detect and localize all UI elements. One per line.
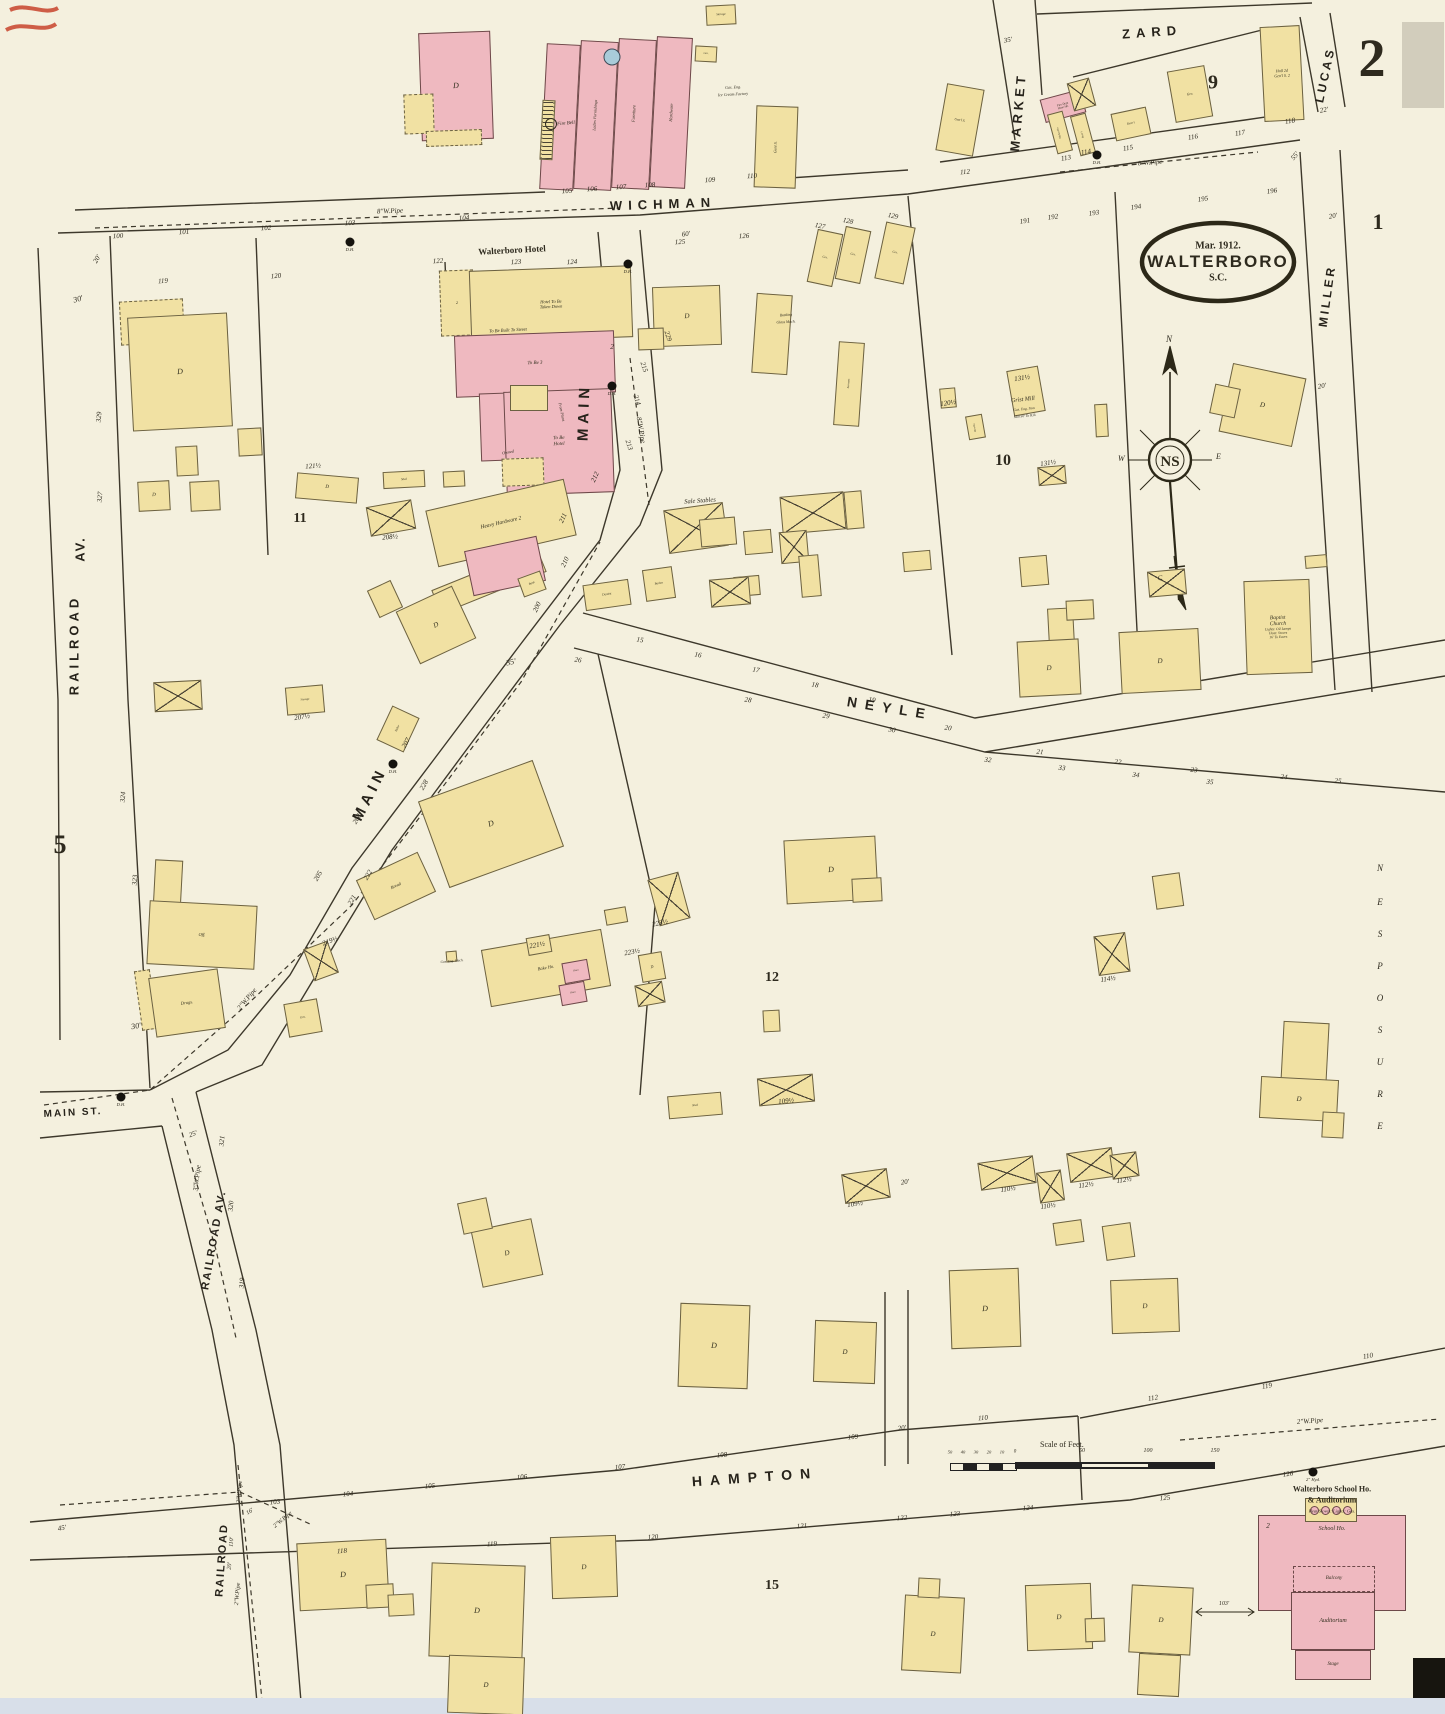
lot-number: 319 — [238, 1277, 247, 1288]
lot-number: 208½ — [382, 532, 398, 541]
building-label: D — [1026, 1584, 1092, 1650]
building-label: D — [1111, 1279, 1179, 1333]
map-annotation: 60' — [681, 229, 691, 238]
building-label: Balcony — [1294, 1567, 1374, 1591]
brick-building: Balcony — [1293, 1566, 1375, 1592]
building-label: D — [296, 473, 358, 502]
compass-west-label: W — [1118, 454, 1125, 463]
building-label: Hall 2dGen'l S. 2 — [1261, 26, 1304, 121]
map-annotation: Gas. Eng. — [725, 84, 741, 90]
lot-number: 126 — [739, 232, 750, 241]
map-annotation: 22' — [1319, 105, 1329, 114]
building-label: Gro. — [1168, 66, 1212, 121]
scan-smudge — [1402, 22, 1444, 108]
map-annotation: Heat-Stoves: Lights: Gas. — [1309, 1509, 1356, 1514]
frame-building: D — [1025, 1583, 1093, 1651]
building-label: Barber — [643, 567, 675, 601]
lot-number: 323 — [131, 874, 140, 885]
lot-number: 21 — [1036, 748, 1044, 757]
lot-number: 324 — [119, 791, 128, 802]
block-number: 1 — [1373, 209, 1384, 235]
lot-number: 24 — [1280, 773, 1288, 782]
map-annotation: & Auditorium — [1308, 1496, 1357, 1505]
frame-building — [443, 470, 466, 487]
lot-number: 107 — [616, 183, 627, 192]
frame-building — [1053, 1219, 1085, 1246]
fire-bell-icon — [545, 118, 557, 130]
block-number: 12 — [765, 970, 779, 986]
lot-number: 105 — [424, 1482, 435, 1491]
frame-building: BaptistChurchLights: Oil LampsHeat: Stov… — [1243, 579, 1312, 675]
street-label-av-: AV. — [73, 536, 88, 562]
scale-segment — [1082, 1462, 1148, 1469]
lot-number: 22 — [1114, 758, 1122, 767]
frame-building: D — [1128, 1584, 1193, 1655]
block-number: 2 — [1359, 27, 1386, 89]
lot-number: 110 — [978, 1414, 989, 1423]
hydrant-dot-icon — [346, 238, 355, 247]
map-annotation: Bottling — [780, 313, 792, 318]
street-label-railroad: RAILROAD — [67, 595, 82, 696]
building-label: Restr't — [1112, 108, 1151, 141]
scale-segment — [1148, 1462, 1215, 1469]
compass-east-label: E — [1216, 452, 1221, 461]
stable-cross-icon — [154, 681, 201, 711]
frame-building — [1094, 404, 1109, 438]
map-annotation: P — [1377, 961, 1383, 971]
lot-number: 109 — [705, 176, 716, 185]
lot-number: 125 — [675, 238, 686, 247]
brick-building: Stage — [1295, 1650, 1371, 1680]
frame-building — [1147, 568, 1187, 597]
building-label: Off. — [147, 901, 256, 968]
map-annotation: R — [1377, 1089, 1383, 1099]
frame-building: Storage — [285, 684, 325, 715]
map-annotation: S — [1378, 929, 1383, 939]
lot-number: 110 — [747, 172, 757, 181]
hydrant-dot-icon — [389, 760, 398, 769]
lot-number: 109½ — [778, 1096, 795, 1106]
lot-number: 117 — [1234, 128, 1245, 138]
lot-number: 195 — [1197, 194, 1209, 203]
frame-building — [917, 1577, 940, 1598]
frame-building — [1093, 932, 1130, 976]
lot-number: 327 — [96, 491, 105, 502]
building-label: Gro. — [284, 999, 321, 1036]
frame-building: Gro. — [695, 45, 718, 62]
lot-number: 20 — [944, 724, 952, 733]
lot-number: 196 — [1266, 186, 1278, 195]
scale-segment — [1015, 1462, 1082, 1469]
frame-building — [153, 680, 203, 712]
map-annotation: Walterboro School Ho. — [1293, 1485, 1371, 1494]
block-number: 15 — [765, 1578, 779, 1594]
frame-building — [699, 516, 737, 547]
building-label: D — [639, 952, 665, 981]
frame-building: Drugs. — [148, 968, 226, 1037]
scale-minor-label: 10 — [1000, 1450, 1005, 1455]
scale-major-label: 100 — [1144, 1448, 1153, 1454]
frame-building: D — [813, 1320, 877, 1384]
frame-building — [1102, 1222, 1136, 1261]
stable-cross-icon — [635, 982, 664, 1006]
map-annotation: 20' — [1317, 381, 1327, 390]
frame-building — [1037, 465, 1067, 486]
map-city-name: WALTERBORO — [1118, 252, 1318, 272]
frame-building — [1065, 599, 1094, 620]
lot-number: 30 — [888, 726, 896, 735]
building-label: Shed — [668, 1093, 722, 1118]
lot-number: 115 — [1122, 143, 1133, 153]
frame-building: D — [295, 472, 359, 503]
lot-number: 23 — [1190, 766, 1198, 775]
frame-building: D — [901, 1594, 965, 1673]
frame-building — [189, 480, 221, 512]
scale-minor-label: 50 — [948, 1450, 953, 1455]
building-label: D — [1018, 639, 1081, 696]
frame-building — [638, 328, 665, 351]
hydrant-dot-icon — [117, 1093, 126, 1102]
scale-bar-title: Scale of Feet. — [1040, 1440, 1084, 1449]
frame-building — [1137, 1653, 1181, 1697]
building-label: Storage — [707, 5, 736, 24]
scale-minor-label: 30 — [974, 1450, 979, 1455]
lot-number: 107 — [614, 1463, 625, 1472]
brick-building: Auditorium — [1291, 1592, 1375, 1650]
frame-building — [851, 877, 882, 903]
hydrant-dot-icon — [1309, 1468, 1318, 1477]
frame-building: Gro. — [283, 998, 322, 1037]
frame-building: Off. — [146, 900, 257, 970]
stable-cross-icon — [1038, 466, 1065, 485]
lot-number: 112 — [1147, 1393, 1158, 1403]
map-annotation: O — [1377, 993, 1384, 1003]
frame-building — [751, 293, 792, 375]
map-annotation: 20' — [900, 1177, 910, 1186]
frame-building — [1321, 1111, 1344, 1138]
map-annotation: S — [1378, 1025, 1383, 1035]
scale-major-label: 150 — [1211, 1448, 1220, 1454]
map-annotation: U — [1377, 1057, 1384, 1067]
frame-building — [1066, 1147, 1116, 1183]
lot-number: 33 — [1058, 764, 1066, 773]
hydrant-dot-icon — [624, 260, 633, 269]
lot-number: 108 — [716, 1451, 727, 1460]
frame-building — [1036, 1169, 1065, 1203]
frame-building: D — [678, 1303, 751, 1389]
building-label: Oven — [560, 982, 587, 1005]
building-label: D — [679, 1304, 750, 1388]
map-date: Mar. 1912. — [1118, 241, 1318, 252]
map-annotation: 35' — [1003, 35, 1013, 44]
lot-number: 123 — [949, 1510, 960, 1519]
lot-number: 29 — [822, 712, 830, 721]
lot-number: 329 — [95, 411, 104, 422]
lot-number: 193 — [1088, 208, 1100, 217]
frame-building — [1304, 554, 1327, 569]
building-label: Stage — [1296, 1651, 1370, 1679]
lot-number: 101 — [179, 228, 190, 237]
frame-building — [843, 490, 864, 529]
lot-number: 2 — [1266, 1522, 1270, 1530]
lot-number: 124 — [1022, 1504, 1033, 1513]
scan-edge-strip — [0, 1698, 1445, 1714]
lot-number: 103 — [345, 219, 356, 228]
map-annotation: E — [1377, 1121, 1383, 1131]
block-number: 10 — [995, 452, 1011, 470]
lot-number: 122 — [433, 257, 444, 266]
lot-number: 103 — [269, 1498, 280, 1507]
scale-minor-label: 20 — [987, 1450, 992, 1455]
lot-number: 119 — [158, 277, 169, 286]
lot-number: 32 — [984, 756, 992, 765]
lot-number: 121½ — [305, 461, 321, 470]
building-label: Dentist — [584, 580, 631, 610]
frame-building — [1019, 555, 1050, 587]
map-annotation: 20' — [1328, 211, 1338, 220]
lot-number: 112 — [960, 168, 971, 177]
frame-building: D — [127, 312, 233, 431]
frame-building — [1152, 872, 1184, 910]
street-label-main: MAIN — [574, 383, 593, 442]
lot-number: 321 — [218, 1135, 227, 1146]
building-label: D — [1119, 629, 1200, 693]
hydrant-label: D.H. — [346, 247, 355, 252]
frame-building: Barber — [642, 566, 676, 602]
map-annotation: 8"W.Pipe — [377, 207, 403, 216]
lot-number: 16 — [694, 651, 702, 660]
frame-building — [1280, 1021, 1329, 1085]
brick-building: Oven — [558, 981, 587, 1006]
stable-cross-icon — [1148, 569, 1186, 596]
building-label: D — [128, 314, 232, 431]
stable-cross-icon — [1037, 1171, 1064, 1203]
frame-building — [1085, 1618, 1106, 1643]
frame-building — [798, 554, 822, 598]
lot-number: 119 — [487, 1540, 498, 1549]
lot-number: 100 — [113, 232, 124, 241]
frame-building: D — [550, 1535, 618, 1599]
lot-number: 110 — [1362, 1351, 1373, 1361]
frame-building — [175, 445, 199, 476]
lot-number: 15 — [636, 636, 644, 645]
lot-number: 104 — [459, 214, 470, 223]
lot-number: 116 — [1187, 132, 1198, 142]
map-state: S.C. — [1118, 273, 1318, 284]
lot-number: 35 — [1206, 778, 1214, 787]
frame-building: Shed — [383, 470, 426, 489]
lot-number: 104 — [342, 1490, 353, 1499]
frame-building: D — [1110, 1278, 1180, 1334]
lot-number: 102 — [261, 224, 272, 233]
lot-number: 118 — [337, 1547, 348, 1556]
lot-number: 121 — [796, 1522, 807, 1531]
building-label: Drugs. — [149, 970, 224, 1037]
lot-number: 18 — [811, 681, 819, 690]
frame-building — [387, 1593, 414, 1616]
frame-building — [762, 1010, 780, 1033]
frame-building: D — [1017, 638, 1082, 697]
lot-number: 109 — [847, 1433, 858, 1442]
lot-number: 118 — [1284, 116, 1295, 126]
frame-building — [237, 427, 262, 456]
hydrant-label: D.H. — [1093, 160, 1102, 165]
building-label: Oven — [563, 960, 590, 983]
lot-number: 108 — [645, 181, 656, 190]
distance-arrow — [1196, 1608, 1254, 1616]
lot-number: C — [1157, 574, 1162, 582]
lot-number: 192 — [1047, 212, 1059, 221]
lot-number: 120 — [270, 272, 281, 281]
building-label: Gro. — [696, 46, 717, 61]
stable-cross-icon — [710, 577, 750, 606]
lot-number: 17 — [752, 666, 760, 675]
sanborn-map-sheet: NS Mar. 1912. WALTERBORO S.C. N W E Scal… — [0, 0, 1445, 1714]
lot-number: 119 — [1261, 1381, 1272, 1391]
lot-number: 320 — [227, 1200, 236, 1211]
stable-cross-icon — [781, 492, 846, 533]
frame-building: Gent S. — [754, 105, 799, 188]
frame-building: D — [1118, 628, 1201, 694]
frame-building — [779, 491, 846, 534]
frame-building: Hall 2dGen'l S. 2 — [1260, 25, 1305, 122]
frame-building — [457, 1197, 493, 1235]
hydrant-dot-icon — [1093, 151, 1102, 160]
lot-number: 122 — [896, 1514, 907, 1523]
stable-cross-icon — [1067, 1148, 1114, 1182]
map-annotation: 20' — [897, 1423, 907, 1432]
lot-number: 120 — [647, 1533, 658, 1542]
building-label: D — [138, 481, 169, 511]
hydrant-label: D.H. — [608, 391, 617, 396]
map-annotation: 45' — [57, 1523, 67, 1532]
hydrant-dot-icon — [608, 382, 617, 391]
frame-building — [510, 385, 548, 411]
building-label: Storage — [286, 685, 324, 714]
svg-text:NS: NS — [1160, 454, 1179, 470]
building-label: Shed — [384, 471, 425, 488]
map-annotation: N — [1377, 863, 1383, 873]
building-label: Auditorium — [1292, 1593, 1374, 1649]
hydrant-label: 2" Hyd. — [1306, 1477, 1320, 1482]
lot-number: 26 — [574, 656, 582, 665]
lot-number: 191 — [1019, 216, 1031, 225]
frame-building — [403, 93, 434, 134]
map-annotation: E — [1377, 897, 1383, 907]
lot-number: 124 — [567, 258, 578, 267]
frame-building — [743, 529, 773, 555]
frame-building — [502, 457, 545, 486]
lot-number: 106 — [587, 185, 598, 194]
lot-number: 194 — [1130, 202, 1142, 211]
building-label: Hardware — [650, 37, 692, 188]
building-label: Ware Ho. — [966, 415, 985, 439]
building-label: D — [1129, 1585, 1192, 1654]
hydrant-label: D.H. — [117, 1102, 126, 1107]
compass-north-label: N — [1166, 334, 1172, 344]
building-label: BaptistChurchLights: Oil LampsHeat: Stov… — [1244, 580, 1311, 674]
frame-building — [841, 1168, 891, 1204]
block-number: 5 — [54, 830, 67, 860]
lot-number: 113 — [1060, 153, 1071, 163]
red-pencil-marks — [6, 7, 58, 30]
lot-number: 126 — [1282, 1469, 1294, 1478]
building-label: D — [448, 1656, 524, 1714]
building-label: D — [429, 1563, 524, 1658]
map-annotation: 30' — [130, 1021, 141, 1032]
lot-number: 114 — [1080, 147, 1091, 157]
water-tank-icon — [604, 49, 621, 66]
scale-zero-label: 0 — [1014, 1450, 1017, 1455]
stable-cross-icon — [842, 1169, 889, 1203]
frame-building: Shed — [667, 1092, 723, 1120]
building-label: D — [814, 1321, 876, 1383]
block-number: 9 — [1208, 72, 1218, 95]
building-label: D — [902, 1596, 964, 1673]
building-label: Gent S. — [755, 106, 798, 187]
frame-building: D — [428, 1562, 525, 1659]
block-number: 11 — [293, 511, 306, 527]
lot-number: 105 — [562, 187, 573, 196]
frame-building — [709, 576, 751, 607]
lot-number: 2 — [610, 343, 614, 351]
lot-number: 25 — [1334, 777, 1342, 786]
stable-cross-icon — [1111, 1152, 1139, 1178]
brick-building: Oven — [561, 959, 590, 984]
frame-building — [426, 129, 483, 147]
frame-building: D — [949, 1268, 1022, 1349]
frame-building: D — [447, 1655, 525, 1714]
frame-building: D — [638, 951, 666, 983]
scale-minor-label: 40 — [961, 1450, 966, 1455]
building-label: Servants — [834, 342, 864, 425]
frame-building: Storage — [705, 4, 736, 26]
lot-number: 28 — [744, 696, 752, 705]
frame-building: D — [137, 480, 171, 512]
lot-number: 106 — [516, 1473, 527, 1482]
hydrant-label: D.H. — [624, 269, 633, 274]
map-annotation: 103' — [1219, 1601, 1229, 1607]
lot-number: 125 — [1159, 1494, 1170, 1503]
building-label: D — [950, 1269, 1021, 1348]
lot-number: 123 — [511, 258, 522, 267]
hydrant-label: D.H. — [389, 769, 398, 774]
lot-number: 34 — [1132, 771, 1140, 780]
map-annotation: 110' — [229, 1537, 236, 1547]
scale-major-label: 50 — [1079, 1448, 1085, 1454]
stable-cross-icon — [1095, 933, 1130, 975]
building-label: D — [551, 1536, 617, 1598]
frame-building — [902, 550, 932, 572]
